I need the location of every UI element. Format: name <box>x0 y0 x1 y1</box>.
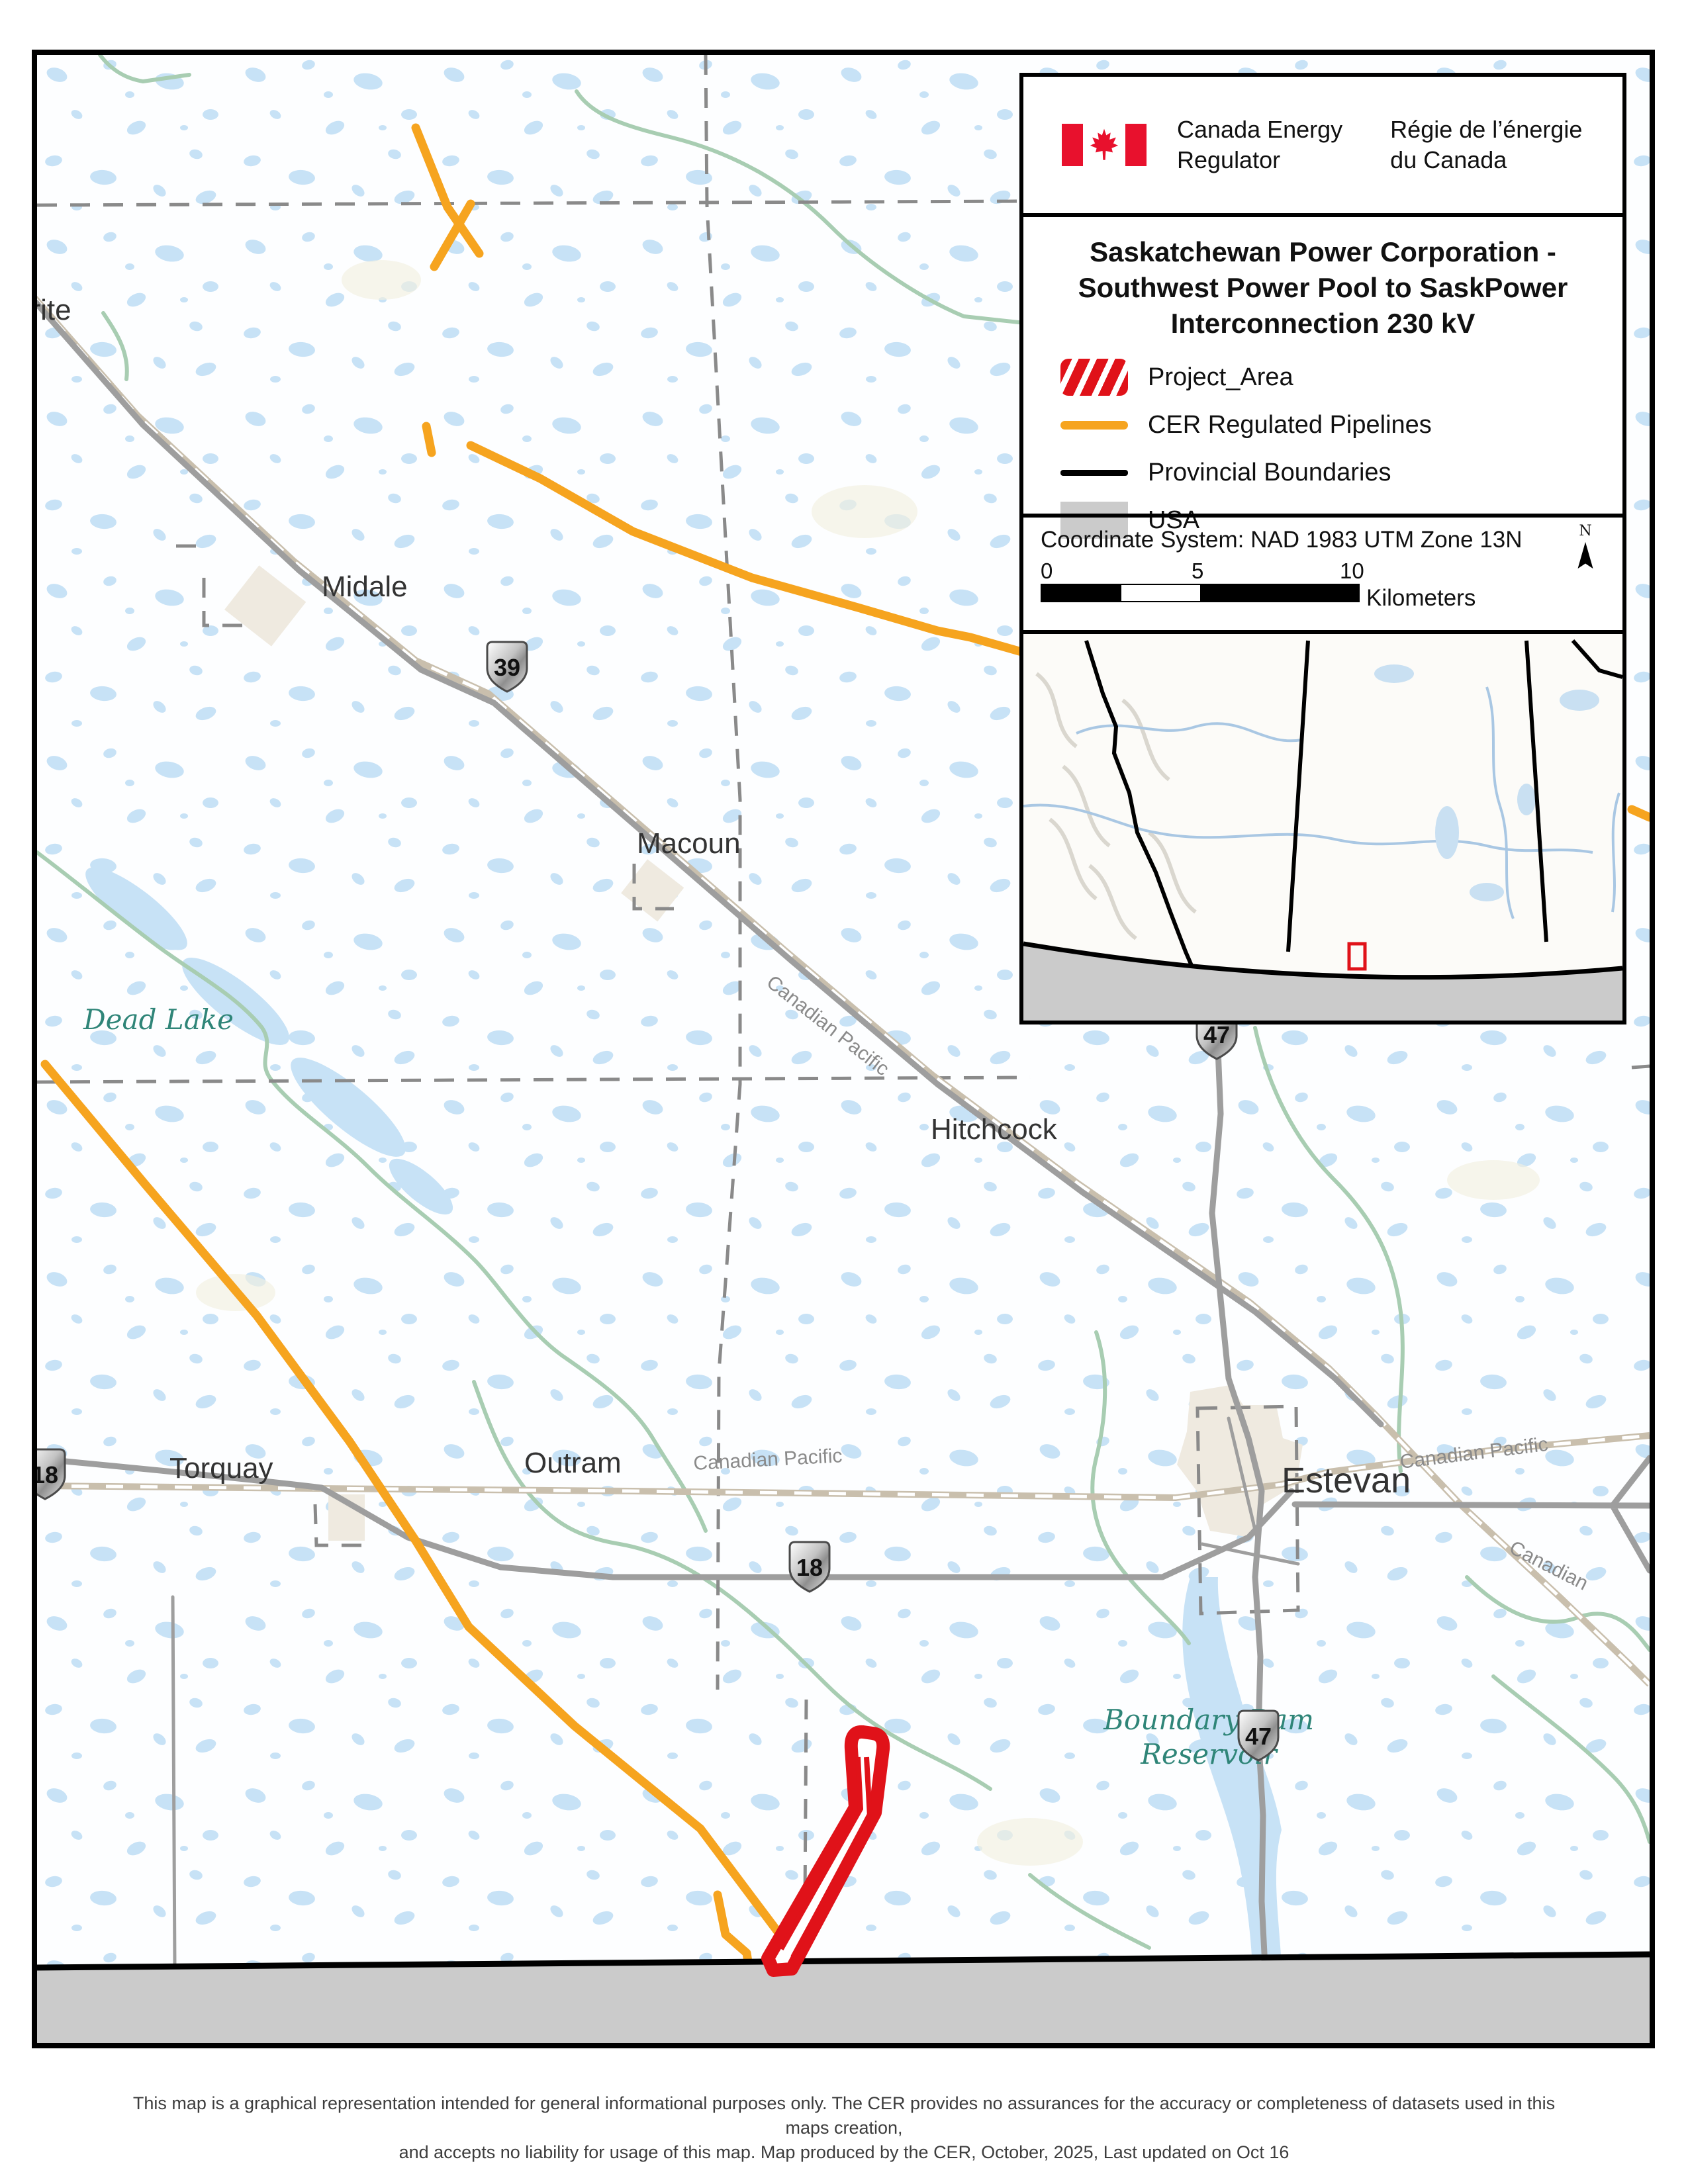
disclaimer-line-1: This map is a graphical representation i… <box>116 2091 1572 2140</box>
legend-panel: Canada Energy Regulator Régie de l’énerg… <box>1019 73 1626 1024</box>
inset-map <box>1023 630 1622 1021</box>
maple-leaf-icon <box>1087 128 1121 162</box>
north-arrow-icon: N <box>1571 523 1600 574</box>
scale-tick-0: 0 <box>1041 559 1053 584</box>
agency-header: Canada Energy Regulator Régie de l’énerg… <box>1023 77 1622 213</box>
legend-item-provincial-boundaries: Provincial Boundaries <box>1023 449 1622 496</box>
town-label-estevan: Estevan <box>1282 1461 1411 1500</box>
scale-units: Kilometers <box>1366 585 1476 612</box>
disclaimer-line-2: and accepts no liability for usage of th… <box>116 2140 1572 2165</box>
legend-item-project-area: Project_Area <box>1023 353 1622 401</box>
boundary-swatch <box>1060 470 1128 476</box>
scale-bar: 0 5 10 Kilometers <box>1041 559 1464 602</box>
pipeline-tick <box>426 426 432 453</box>
agency-name-en: Canada Energy Regulator <box>1177 114 1342 175</box>
map-title: Saskatchewan Power Corporation - Southwe… <box>1023 234 1622 341</box>
scale-tick-10: 10 <box>1340 559 1364 584</box>
disclaimer: This map is a graphical representation i… <box>116 2091 1572 2165</box>
legend-item-cer-pipelines: CER Regulated Pipelines <box>1023 401 1622 449</box>
usa-area <box>37 1954 1650 2043</box>
town-label-halbrite: orite <box>37 294 71 326</box>
water-label-dead-lake: Dead Lake <box>83 1003 234 1036</box>
project-area-swatch <box>1060 359 1128 396</box>
scale-tick-5: 5 <box>1192 559 1203 584</box>
agency-name-fr: Régie de l’énergie du Canada <box>1390 114 1582 175</box>
town-label-outram: Outram <box>524 1447 622 1479</box>
svg-text:18: 18 <box>796 1554 823 1581</box>
water-label-boundary-dam-1: Boundary Dam <box>1103 1704 1314 1736</box>
canada-flag-icon <box>1062 124 1147 166</box>
legend-body: Saskatchewan Power Corporation - Southwe… <box>1023 213 1622 514</box>
svg-text:47: 47 <box>1245 1723 1272 1750</box>
town-label-torquay: Torquay <box>169 1452 273 1484</box>
town-label-macoun: Macoun <box>637 827 741 860</box>
svg-text:39: 39 <box>494 654 520 681</box>
svg-text:18: 18 <box>37 1461 58 1488</box>
town-label-midale: Midale <box>322 570 408 603</box>
coordinate-system-text: Coordinate System: NAD 1983 UTM Zone 13N <box>1023 518 1622 553</box>
scale-bar-segments <box>1041 584 1360 602</box>
town-label-hitchcock: Hitchcock <box>931 1113 1058 1146</box>
pipeline-swatch <box>1060 421 1128 430</box>
coordinate-section: Coordinate System: NAD 1983 UTM Zone 13N… <box>1023 514 1622 630</box>
svg-text:47: 47 <box>1203 1021 1230 1048</box>
